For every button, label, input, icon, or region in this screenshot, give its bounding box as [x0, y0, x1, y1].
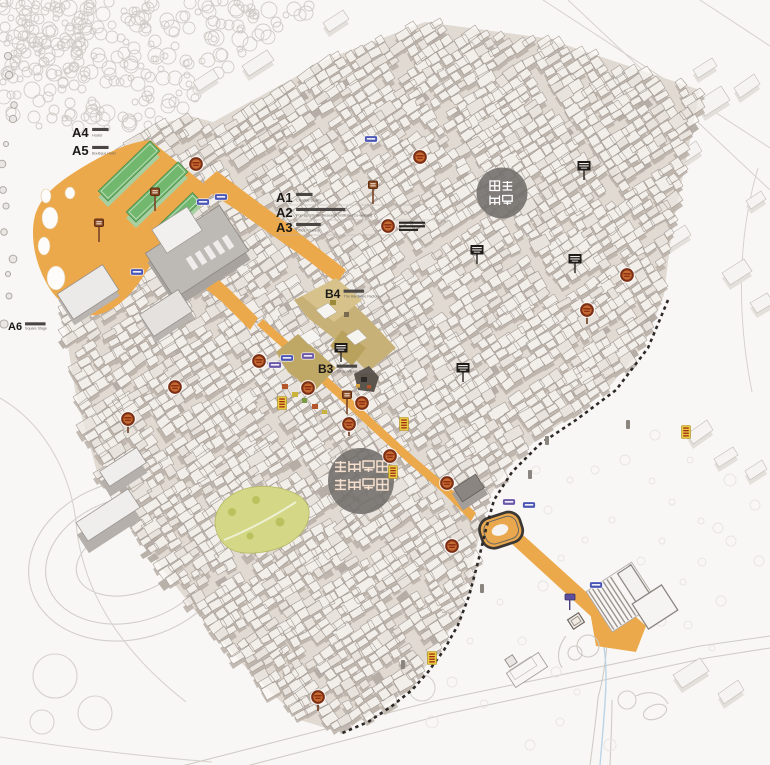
svg-text:Creative Studio: Creative Studio [296, 199, 321, 203]
svg-text:A2: A2 [276, 205, 293, 220]
svg-text:A4: A4 [72, 125, 89, 140]
svg-text:Hostel: Hostel [92, 134, 102, 138]
svg-text:A3: A3 [276, 220, 293, 235]
svg-text:Pop-Up Stroller Research Insti: Pop-Up Stroller Research Institute / Co-… [296, 214, 372, 218]
svg-text:B3: B3 [318, 362, 334, 376]
svg-text:Office / Gallery: Office / Gallery [296, 229, 320, 233]
svg-text:Urban Village Bookstore: Urban Village Bookstore [337, 370, 376, 374]
svg-text:The Hardware Factory: The Hardware Factory [344, 295, 380, 299]
svg-text:B4: B4 [325, 287, 341, 301]
svg-text:Boutique Hotel: Boutique Hotel [92, 152, 116, 156]
svg-text:Square Stage: Square Stage [25, 327, 47, 331]
svg-text:A5: A5 [72, 143, 89, 158]
svg-text:A1: A1 [276, 190, 293, 205]
svg-text:A6: A6 [8, 321, 22, 333]
